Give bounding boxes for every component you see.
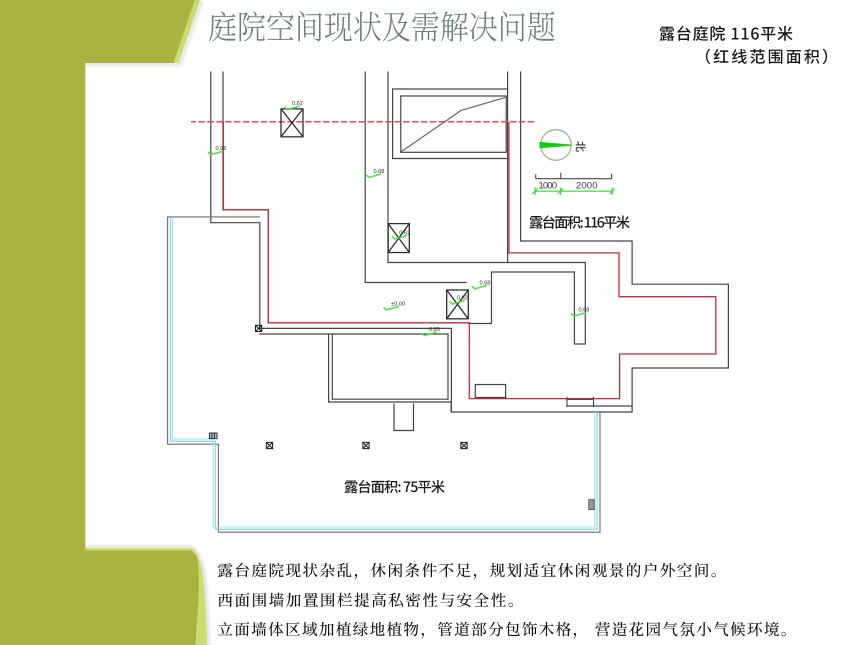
svg-text:2000: 2000 [576,181,598,192]
svg-text:0.62: 0.62 [457,296,468,302]
svg-text:1000: 1000 [539,181,558,192]
svg-text:0.68: 0.68 [480,280,491,286]
svg-text:0.95: 0.95 [216,146,227,152]
svg-text:0.68: 0.68 [374,169,385,175]
svg-text:0.95: 0.95 [429,327,440,333]
svg-text:0.62: 0.62 [292,101,303,107]
svg-text:0.68: 0.68 [579,308,590,314]
svg-text:0.62: 0.62 [399,231,410,237]
svg-text:±0.00: ±0.00 [391,302,405,308]
